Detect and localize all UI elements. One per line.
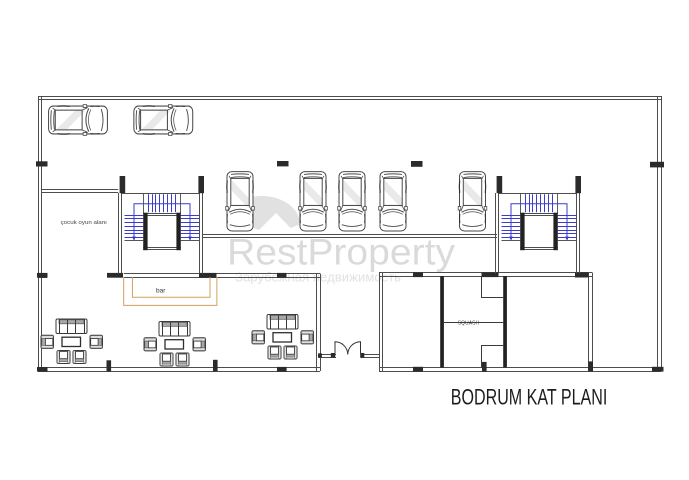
svg-text:çocuk oyun alanı: çocuk oyun alanı bbox=[61, 220, 107, 226]
svg-text:RestProperty: RestProperty bbox=[227, 231, 455, 273]
svg-text:bar: bar bbox=[156, 288, 166, 295]
svg-text:BODRUM KAT PLANI: BODRUM KAT PLANI bbox=[451, 385, 608, 410]
svg-text:SQUASH: SQUASH bbox=[458, 321, 480, 327]
